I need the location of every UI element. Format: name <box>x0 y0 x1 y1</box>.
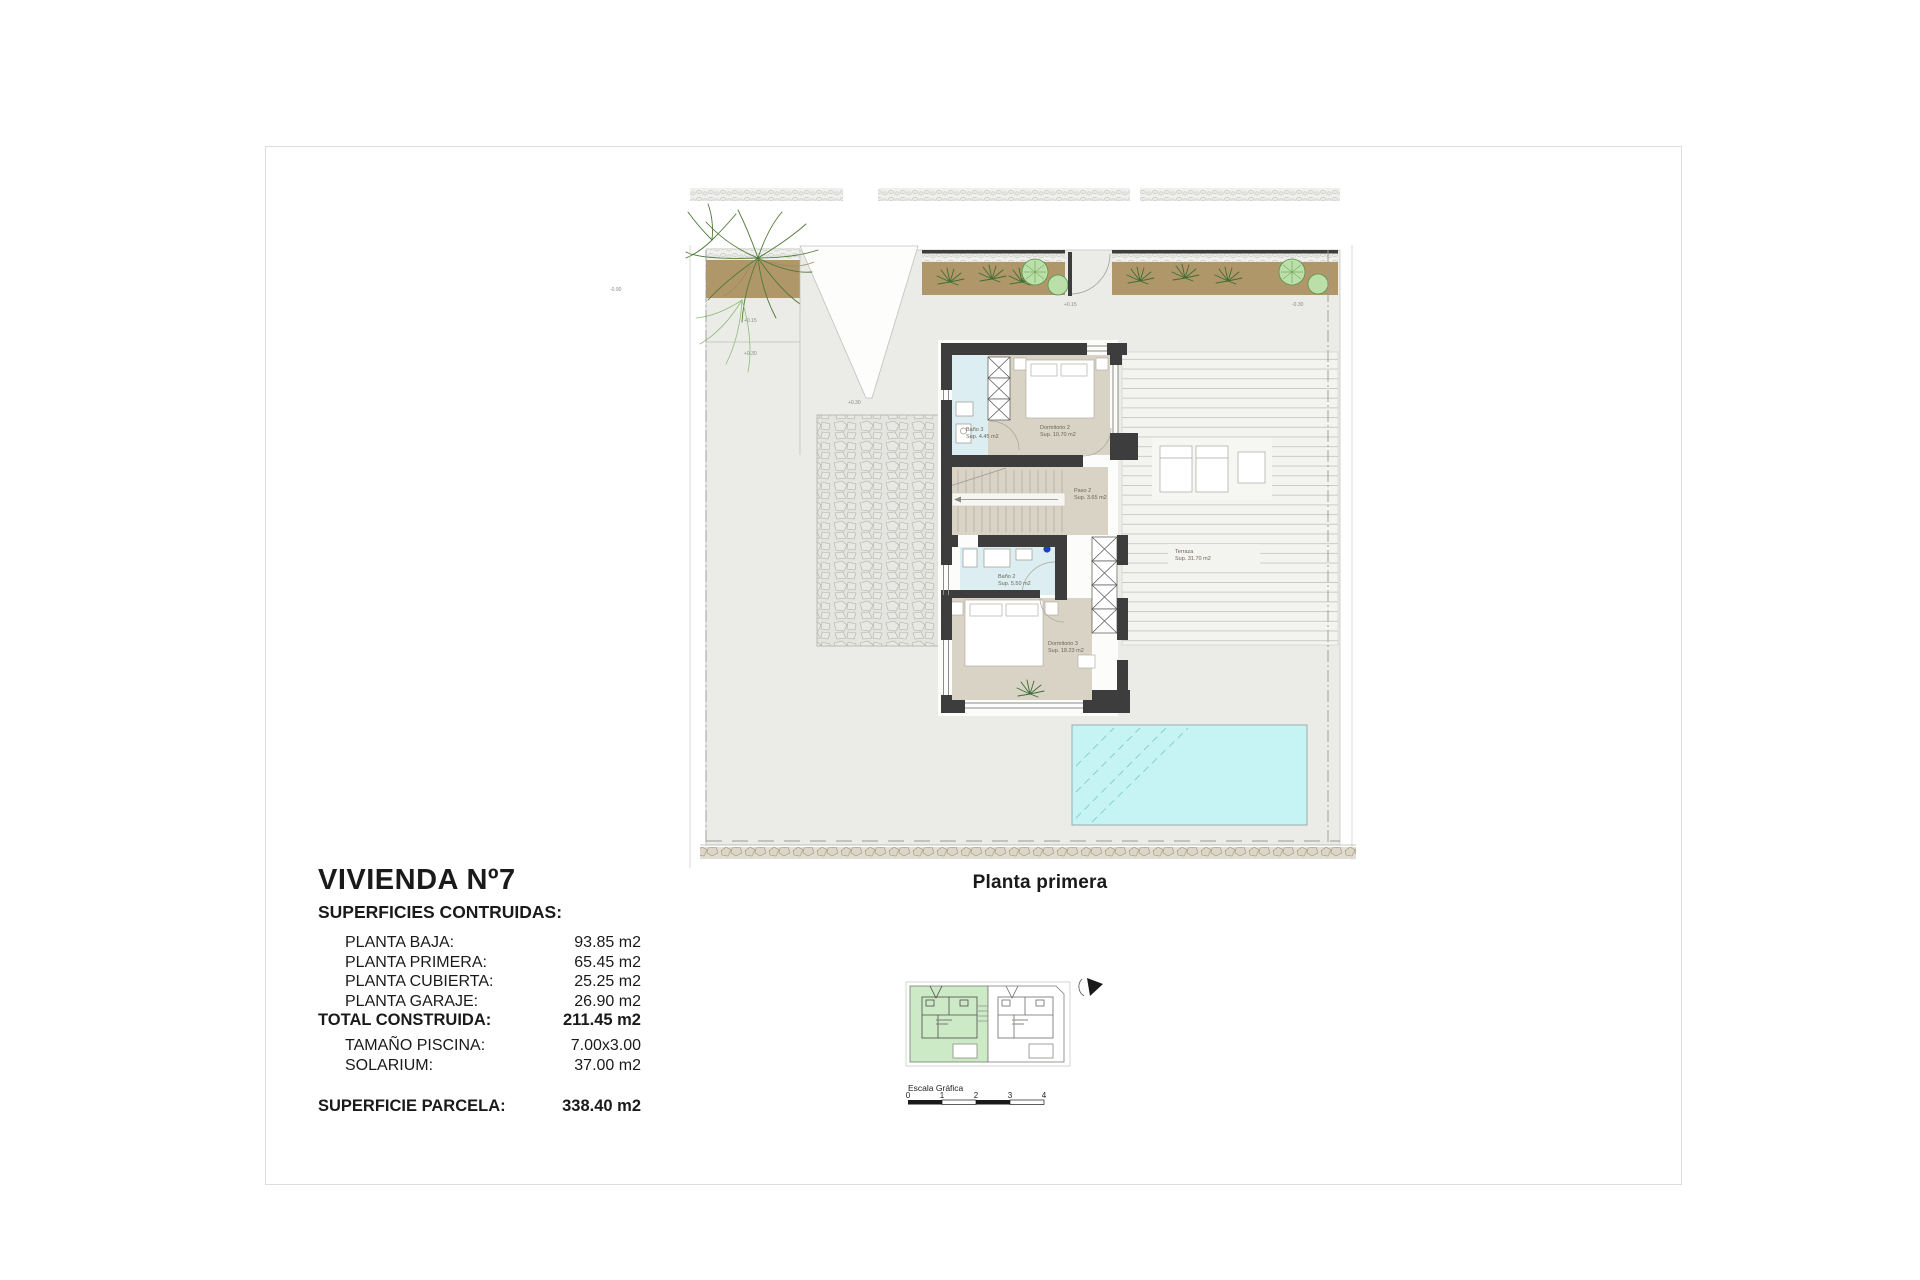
table-row: PLANTA BAJA: 93.85 m2 <box>345 933 641 953</box>
room-label-bano2: Baño 2 <box>998 574 1015 580</box>
level-label: -0.30 <box>1292 302 1304 308</box>
room-label-bano3: Baño 3 <box>966 427 983 433</box>
surfaces-subtitle: SUPERFICIES CONTRUIDAS: <box>318 902 562 923</box>
north-arrow-icon <box>1079 978 1103 996</box>
scale-tick: 0 <box>906 1091 911 1100</box>
scale-label: Escala Gráfica <box>908 1083 964 1093</box>
parcel-value: 338.40 m2 <box>562 1096 641 1116</box>
room-area-terraza: Sup. 31.70 m2 <box>1175 556 1211 562</box>
table-row: PLANTA PRIMERA: 65.45 m2 <box>345 953 641 973</box>
table-row: PLANTA CUBIERTA: 25.25 m2 <box>345 972 641 992</box>
row-value: 93.85 m2 <box>574 933 641 953</box>
total-label: TOTAL CONSTRUIDA: <box>318 1010 491 1030</box>
scale-tick: 2 <box>974 1091 979 1100</box>
table-row: SOLARIUM: 37.00 m2 <box>345 1056 641 1076</box>
terrace-deck: Terraza Sup. 31.70 m2 <box>1122 352 1338 645</box>
pool <box>1072 725 1307 825</box>
dwelling-title: VIVIENDA Nº7 <box>318 864 516 897</box>
table-row: PLANTA GARAJE: 26.90 m2 <box>345 992 641 1012</box>
room-label-dormitorio2: Dormitorio 2 <box>1040 425 1070 431</box>
level-label: +0.15 <box>1064 302 1077 308</box>
level-label: +0.15 <box>744 318 757 324</box>
row-value: 25.25 m2 <box>574 972 641 992</box>
scale-bar: 0 1 2 3 4 <box>906 1091 1047 1105</box>
level-label: +0.30 <box>744 351 757 357</box>
room-area-bano2: Sup. 5.50 m2 <box>998 581 1031 587</box>
surface-rows: PLANTA BAJA: 93.85 m2 PLANTA PRIMERA: 65… <box>345 933 641 1011</box>
parcel-label: SUPERFICIE PARCELA: <box>318 1096 506 1116</box>
secondary-rows: TAMAÑO PISCINA: 7.00x3.00 SOLARIUM: 37.0… <box>345 1036 641 1075</box>
closet-shaft <box>988 357 1010 420</box>
row-value: 7.00x3.00 <box>571 1036 641 1056</box>
total-row: TOTAL CONSTRUIDA: 211.45 m2 <box>318 1010 641 1030</box>
site-plan-drawing: Terraza Sup. 31.70 m2 <box>560 180 1400 920</box>
scale-tick: 4 <box>1042 1091 1047 1100</box>
room-area-dormitorio3: Sup. 18.23 m2 <box>1048 648 1084 654</box>
row-label: SOLARIUM: <box>345 1056 433 1076</box>
key-plan: Escala Gráfica 0 1 2 3 4 <box>880 965 1120 1115</box>
house-floorplan: Baño 3 Sup. 4.45 m2 Dormitorio 2 Sup. 10… <box>938 340 1138 716</box>
row-label: TAMAÑO PISCINA: <box>345 1036 485 1056</box>
room-area-dormitorio2: Sup. 10.70 m2 <box>1040 432 1076 438</box>
row-label: PLANTA BAJA: <box>345 933 454 953</box>
parcel-row: SUPERFICIE PARCELA: 338.40 m2 <box>318 1096 641 1116</box>
planting-bed-right <box>922 250 1338 296</box>
scale-tick: 1 <box>940 1091 945 1100</box>
row-value: 65.45 m2 <box>574 953 641 973</box>
row-value: 26.90 m2 <box>574 992 641 1012</box>
street-pavement <box>690 188 1340 201</box>
row-value: 37.00 m2 <box>574 1056 641 1076</box>
table-row: TAMAÑO PISCINA: 7.00x3.00 <box>345 1036 641 1056</box>
row-label: PLANTA PRIMERA: <box>345 953 487 973</box>
row-label: PLANTA CUBIERTA: <box>345 972 493 992</box>
row-label: PLANTA GARAJE: <box>345 992 478 1012</box>
wardrobe <box>1092 537 1117 633</box>
room-label-paso2: Paso 2 <box>1074 488 1091 494</box>
room-label-terraza: Terraza <box>1175 549 1194 555</box>
room-label-dormitorio3: Dormitorio 3 <box>1048 641 1078 647</box>
scale-tick: 3 <box>1008 1091 1013 1100</box>
plan-caption: Planta primera <box>940 872 1140 894</box>
total-value: 211.45 m2 <box>563 1010 641 1030</box>
bed-dormitorio2 <box>1014 358 1108 418</box>
room-area-bano3: Sup. 4.45 m2 <box>966 434 999 440</box>
tree-icon <box>1022 259 1048 285</box>
room-area-paso2: Sup. 3.65 m2 <box>1074 495 1107 501</box>
level-label: -0.90 <box>610 287 622 293</box>
cobbled-courtyard <box>817 415 944 646</box>
level-label: +0.30 <box>848 400 861 406</box>
